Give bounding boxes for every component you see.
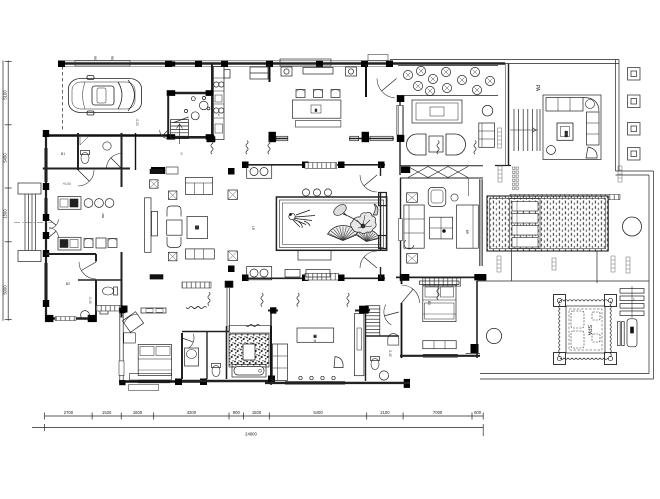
svg-text:M: M [314, 335, 317, 339]
svg-text:SPA: SPA [586, 325, 592, 336]
svg-text:1600: 1600 [133, 410, 143, 415]
svg-text:90: 90 [93, 56, 97, 60]
svg-text:3X6: 3X6 [564, 131, 568, 137]
svg-text:-0.45: -0.45 [88, 296, 92, 303]
svg-text:B: B [102, 213, 104, 217]
svg-text:PA: PA [534, 85, 540, 92]
svg-text:5100: 5100 [3, 90, 8, 100]
svg-text:S: S [180, 152, 182, 156]
svg-text:-0.20: -0.20 [135, 118, 139, 125]
svg-text:B1: B1 [61, 152, 65, 156]
svg-text:1500: 1500 [252, 410, 262, 415]
svg-text:B2: B2 [66, 282, 70, 286]
svg-text:900: 900 [233, 410, 241, 415]
svg-text:M: M [314, 339, 317, 343]
svg-text:L: L [633, 297, 635, 301]
svg-text:-0.45: -0.45 [388, 349, 392, 356]
svg-text:5450: 5450 [3, 153, 8, 163]
svg-text:1520: 1520 [102, 410, 112, 415]
svg-text:BR: BR [465, 230, 469, 235]
svg-text:BD: BD [427, 301, 431, 306]
svg-text:5400: 5400 [313, 410, 323, 415]
svg-text:24600: 24600 [245, 432, 257, 437]
svg-text:2700: 2700 [64, 410, 74, 415]
svg-text:90: 90 [110, 56, 114, 60]
svg-text:4200: 4200 [187, 410, 197, 415]
svg-text:5000: 5000 [3, 285, 8, 295]
svg-text:600: 600 [474, 410, 482, 415]
svg-text:2100: 2100 [380, 410, 390, 415]
svg-text:+0.00: +0.00 [63, 182, 71, 186]
svg-text:LR: LR [251, 226, 255, 231]
svg-text:1500: 1500 [3, 209, 8, 219]
svg-text:7000: 7000 [433, 410, 443, 415]
